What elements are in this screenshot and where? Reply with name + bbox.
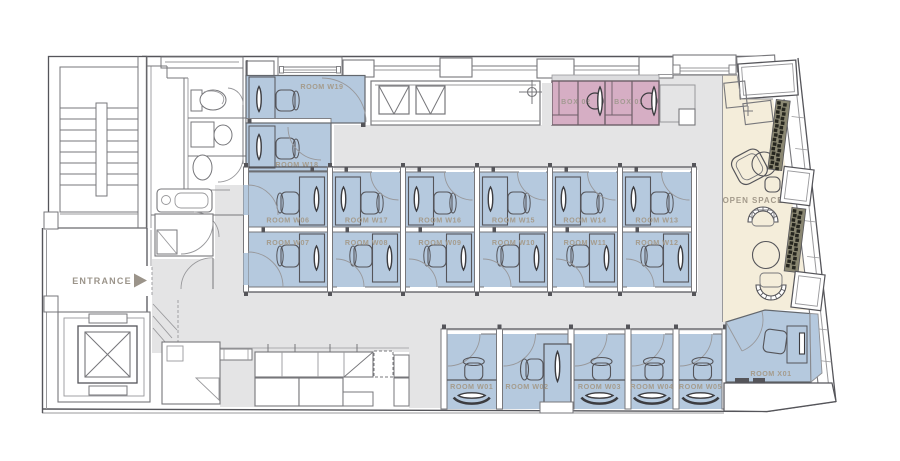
svg-text:ROOM W04: ROOM W04 [630,382,673,391]
svg-text:ROOM W13: ROOM W13 [635,216,678,225]
svg-text:ROOM W14: ROOM W14 [563,216,606,225]
svg-text:ROOM W01: ROOM W01 [450,382,493,391]
svg-text:ROOM X01: ROOM X01 [750,369,791,378]
svg-text:ROOM W17: ROOM W17 [345,216,388,225]
svg-text:ROOM W11: ROOM W11 [564,238,607,247]
svg-text:ROOM W12: ROOM W12 [635,238,678,247]
svg-text:ROOM W02: ROOM W02 [505,382,548,391]
svg-text:ROOM W10: ROOM W10 [492,238,535,247]
svg-text:ROOM W07: ROOM W07 [266,238,309,247]
svg-text:ROOM W09: ROOM W09 [418,238,461,247]
svg-text:ENTRANCE: ENTRANCE [72,276,132,286]
svg-text:ROOM W16: ROOM W16 [418,216,461,225]
svg-text:ROOM W05: ROOM W05 [679,382,722,391]
svg-text:ROOM W03: ROOM W03 [578,382,621,391]
svg-text:ROOM W15: ROOM W15 [492,216,535,225]
svg-text:OPEN SPACE: OPEN SPACE [723,196,784,205]
svg-text:BOX 01: BOX 01 [614,99,644,106]
svg-text:ROOM W19: ROOM W19 [300,82,343,91]
svg-text:ROOM W08: ROOM W08 [345,238,388,247]
svg-text:ROOM W06: ROOM W06 [266,216,309,225]
svg-text:BOX 02: BOX 02 [561,99,591,106]
